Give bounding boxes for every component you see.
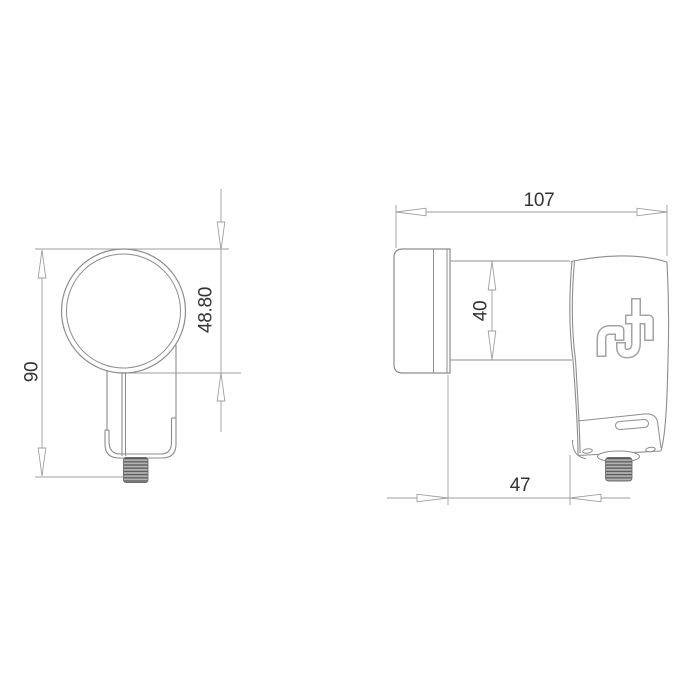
arrow-left-icon — [570, 494, 601, 502]
body-length-label: 47 — [510, 475, 531, 496]
arrow-up-icon — [38, 250, 46, 278]
arrow-up-icon — [217, 373, 225, 401]
arrow-down-icon — [38, 448, 46, 476]
side-view: 107 40 47 — [387, 190, 669, 505]
feedhorn-outer-circle — [62, 249, 186, 373]
feedhorn-cap — [394, 249, 450, 373]
arrow-left-icon — [396, 208, 426, 216]
arrow-right-icon — [417, 494, 448, 502]
arrow-up-icon — [488, 262, 496, 291]
f-connector-front — [124, 458, 149, 483]
bracket-inner-edge — [109, 418, 172, 454]
feedhorn-diameter-label: 48.80 — [196, 287, 217, 333]
bracket-outer-edge — [105, 418, 176, 458]
height-dimension-label: 90 — [22, 362, 43, 383]
neck-diameter-label: 40 — [471, 301, 492, 322]
front-view: 90 48.80 — [22, 189, 242, 483]
arrow-down-icon — [217, 222, 225, 250]
neck — [447, 261, 572, 360]
f-connector-side — [606, 458, 633, 482]
overall-length-label: 107 — [524, 190, 555, 211]
arrow-right-icon — [637, 208, 667, 216]
lnb-dimension-drawing: 90 48.80 — [0, 0, 700, 700]
technical-drawing-page: 90 48.80 — [0, 0, 700, 700]
arrow-down-icon — [488, 331, 496, 360]
